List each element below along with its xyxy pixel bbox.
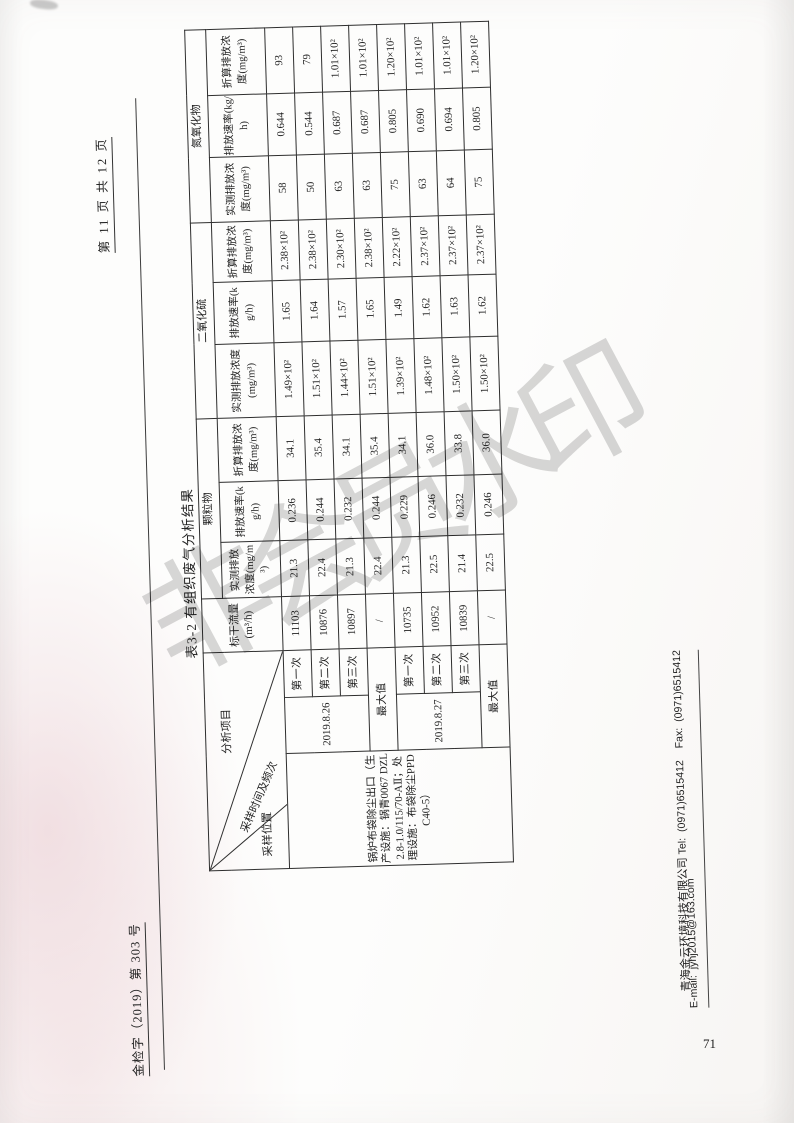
- pm-rate: 0.246: [474, 474, 504, 535]
- flow-value: 10839: [449, 591, 479, 646]
- pm-measured: 21.3: [336, 538, 366, 594]
- pm-converted: 34.1: [388, 413, 418, 477]
- so2-converted: 2.38×10²: [298, 219, 328, 280]
- flow-header-unit: (m³/h): [242, 611, 255, 639]
- so2-rate-header: 排放速率(kg/h): [213, 281, 274, 344]
- so2-rate: 1.49: [384, 277, 414, 339]
- pm-converted: 36.0: [416, 412, 446, 476]
- nox-rate: 0.805: [379, 89, 409, 152]
- so2-rate: 1.57: [328, 279, 358, 341]
- pm-converted: 33.8: [444, 411, 474, 475]
- nox-rate: 0.644: [267, 93, 297, 156]
- pm-converted-header: 折算排放浓度(mg/m³): [217, 417, 278, 482]
- so2-measured: 1.48×10²: [414, 337, 444, 412]
- seq-cell: 第二次: [423, 646, 452, 693]
- pm-measured: 21.4: [448, 535, 478, 591]
- nox-measured: 63: [352, 153, 382, 218]
- corner-label-sampling-location: 采样位置: [260, 812, 275, 857]
- scanned-page: 金检字（2019）第 303 号 第 11 页 共 12 页 表3-2 有组织废…: [0, 0, 794, 1123]
- so2-converted: 2.22×10²: [382, 216, 412, 277]
- scan-smudge: [30, 0, 59, 11]
- nox-converted: 1.01×10²: [349, 25, 379, 91]
- pm-rate: 0.236: [278, 480, 308, 541]
- nox-measured: 75: [464, 149, 494, 214]
- pm-rate: 0.246: [418, 476, 448, 537]
- seq-cell: 第三次: [339, 648, 368, 695]
- so2-rate: 1.64: [300, 279, 330, 341]
- nox-measured: 50: [296, 154, 326, 219]
- flow-value: 10876: [309, 595, 339, 650]
- flow-value: /: [477, 590, 507, 645]
- footer-company-line: 青海金云环境科技有限公司 Tel: (0971)6515412 Fax: (09…: [656, 649, 710, 1008]
- corner-label-analysis-item: 分析项目: [219, 709, 234, 754]
- so2-measured: 1.51×10²: [358, 339, 388, 414]
- so2-rate: 1.62: [468, 274, 498, 336]
- so2-converted: 2.37×10²: [438, 215, 468, 276]
- pm-converted: 34.1: [332, 415, 362, 479]
- nox-converted: 79: [293, 26, 323, 92]
- so2-converted-header: 折算排放浓度(mg/m³): [211, 221, 272, 283]
- so2-converted: 2.37×10²: [410, 216, 440, 277]
- pm-converted: 36.0: [472, 410, 502, 474]
- so2-measured: 1.39×10²: [386, 338, 416, 413]
- pm-measured: 22.4: [308, 539, 338, 595]
- pm-rate-header: 排放速率(kg/h): [219, 481, 280, 543]
- pm-rate: 0.232: [446, 475, 476, 536]
- pm-measured-header: 实测排放浓度(mg/m³): [221, 541, 282, 598]
- nox-measured: 64: [436, 150, 466, 215]
- pm-measured: 21.3: [280, 540, 310, 596]
- nox-rate-header: 排放速率(kg/h): [208, 94, 269, 158]
- so2-measured: 1.44×10²: [330, 340, 360, 415]
- so2-converted: 2.37×10²: [466, 214, 496, 275]
- flow-value: 10952: [421, 591, 451, 646]
- pm-measured: 22.5: [476, 534, 506, 590]
- footer-contact: Tel: (0971)6515412 Fax: (0971)6515412: [671, 650, 689, 858]
- doc-number: 金检字（2019）第 303 号: [124, 923, 151, 1077]
- nox-converted: 93: [265, 27, 295, 93]
- date-cell: 2019.8.26: [284, 695, 370, 754]
- nox-converted: 1.01×10²: [321, 25, 351, 91]
- so2-rate: 1.65: [356, 278, 386, 340]
- so2-converted: 2.30×10²: [326, 218, 356, 279]
- so2-rate: 1.65: [272, 280, 302, 342]
- pm-converted: 35.4: [304, 415, 334, 479]
- flow-header: 标干流量 (m³/h): [202, 596, 284, 653]
- nox-measured: 58: [268, 155, 298, 220]
- flow-value: 10735: [393, 592, 423, 647]
- nox-rate: 0.690: [406, 89, 436, 152]
- so2-measured: 1.49×10²: [274, 342, 304, 417]
- seq-cell: 第二次: [311, 649, 340, 696]
- pm-measured: 22.4: [364, 538, 394, 594]
- so2-measured-header: 实测排放浓度(mg/m³): [215, 342, 276, 418]
- nox-converted: 1.01×10²: [405, 23, 435, 89]
- seq-cell: 第一次: [283, 650, 312, 697]
- so2-measured: 1.50×10²: [470, 336, 500, 411]
- analysis-results-table: 分析项目 采样时间及频次 采样位置 标干流量 (m³/h) 颗粒物 二氧化硫 氮…: [184, 21, 514, 872]
- pm-rate: 0.229: [390, 476, 420, 537]
- nox-measured: 63: [324, 154, 354, 219]
- pm-rate: 0.244: [306, 479, 336, 540]
- so2-rate: 1.63: [440, 275, 470, 337]
- corner-diagonal-lines: [204, 651, 289, 870]
- landscape-content: 金检字（2019）第 303 号 第 11 页 共 12 页 表3-2 有组织废…: [0, 0, 794, 1123]
- pm-measured: 21.3: [392, 537, 422, 593]
- nox-rate: 0.544: [295, 92, 325, 155]
- sampling-location-cell: 锅炉布袋除尘出口（生产设施：锅青0067 DZL2.8-1.0/115/70-A…: [286, 747, 513, 869]
- flow-value: 10897: [337, 594, 367, 649]
- so2-rate: 1.62: [412, 276, 442, 338]
- nox-rate: 0.687: [351, 90, 381, 153]
- nox-converted: 1.20×10²: [461, 21, 491, 87]
- pdf-page-number: 71: [703, 1036, 716, 1052]
- nox-rate: 0.805: [462, 87, 492, 150]
- nox-measured-header: 实测排放浓度(mg/m³): [209, 156, 270, 222]
- pm-measured: 22.5: [420, 536, 450, 592]
- nox-rate: 0.687: [323, 91, 353, 154]
- flow-header-label: 标干流量: [228, 603, 241, 647]
- nox-measured: 63: [408, 151, 438, 216]
- corner-header-cell: 分析项目 采样时间及频次 采样位置: [203, 651, 289, 871]
- seq-cell: 第一次: [395, 647, 424, 694]
- pm-rate: 0.244: [362, 477, 392, 538]
- nox-measured: 75: [380, 152, 410, 217]
- pm-converted: 34.1: [276, 416, 306, 480]
- page-indicator: 第 11 页 共 12 页: [90, 137, 115, 254]
- flow-value: /: [365, 593, 395, 648]
- pm-rate: 0.232: [334, 478, 364, 539]
- so2-converted: 2.38×10²: [354, 217, 384, 278]
- nox-converted-header: 折算排放浓度(mg/m³): [206, 28, 267, 95]
- date-cell: 2019.8.27: [396, 691, 482, 750]
- nox-converted: 1.01×10²: [433, 22, 463, 88]
- nox-rate: 0.694: [434, 88, 464, 151]
- pm-converted: 35.4: [360, 414, 390, 478]
- seq-cell: 第三次: [451, 645, 480, 692]
- so2-converted: 2.38×10²: [270, 220, 300, 281]
- max-label-cell: 最大值: [479, 644, 510, 748]
- max-label-cell: 最大值: [367, 648, 398, 752]
- so2-measured: 1.51×10²: [302, 341, 332, 416]
- nox-converted: 1.20×10²: [377, 24, 407, 90]
- flow-value: 11103: [281, 596, 311, 651]
- so2-measured: 1.50×10²: [442, 337, 472, 412]
